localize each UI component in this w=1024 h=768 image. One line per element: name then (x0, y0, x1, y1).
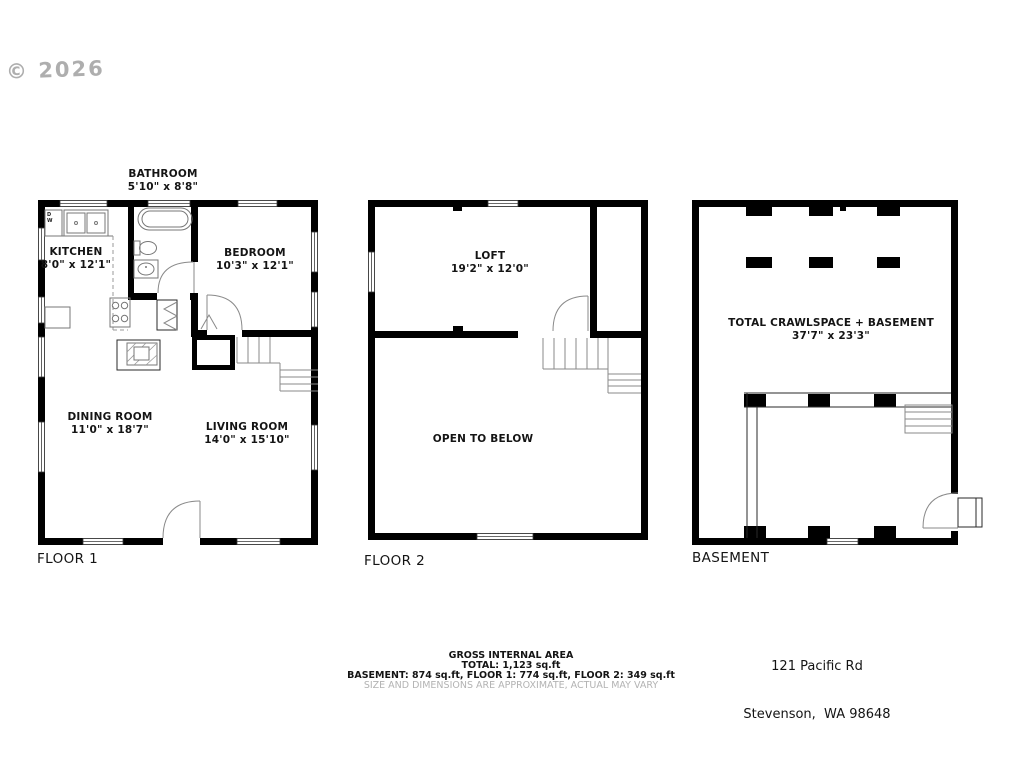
toilet (134, 241, 157, 255)
living-room-name: LIVING ROOM (204, 421, 289, 434)
bedroom-label: BEDROOM 10'3" x 12'1" (216, 247, 294, 273)
kitchen-dims: 8'0" x 12'1" (41, 259, 111, 272)
support-pillars (744, 207, 900, 538)
closet (195, 338, 233, 368)
kitchen-label: KITCHEN 8'0" x 12'1" (41, 246, 111, 272)
loft-label: LOFT 19'2" x 12'0" (451, 250, 529, 276)
basement-name: BASEMENT (692, 550, 769, 566)
dishwasher-label-w: W (47, 219, 53, 225)
copyright-watermark: © 2026 (6, 56, 106, 83)
stairs (237, 337, 318, 391)
dining-room-dims: 11'0" x 18'7" (68, 424, 153, 437)
hall-closet-bifold (157, 300, 177, 330)
fireplace (117, 340, 160, 370)
living-room-dims: 14'0" x 15'10" (204, 434, 289, 447)
address-line1: 121 Pacific Rd (743, 659, 890, 675)
bathtub (138, 208, 192, 230)
bedroom-name: BEDROOM (216, 247, 294, 260)
bathroom-door (158, 262, 194, 293)
bedroom-door (201, 295, 242, 330)
floorplan-page: © 2026 (0, 0, 1024, 768)
living-room-label: LIVING ROOM 14'0" x 15'10" (204, 421, 289, 447)
dining-room-label: DINING ROOM 11'0" x 18'7" (68, 411, 153, 437)
kitchen-name: KITCHEN (41, 246, 111, 259)
bathroom-label: BATHROOM 5'10" x 8'8" (128, 168, 198, 194)
basement-door (923, 493, 982, 531)
refrigerator (45, 307, 70, 328)
loft-name: LOFT (451, 250, 529, 263)
loft-door (553, 296, 588, 331)
crawlspace-dims: 37'7" x 23'3" (728, 330, 934, 343)
basement-outer-walls (692, 200, 958, 545)
floor2-name: FLOOR 2 (364, 553, 425, 569)
basement-window (827, 539, 858, 545)
open-to-below-text: OPEN TO BELOW (433, 433, 534, 446)
crawlspace-label: TOTAL CRAWLSPACE + BASEMENT 37'7" x 23'3… (728, 317, 934, 343)
stairs (543, 338, 641, 393)
floor1-name: FLOOR 1 (37, 551, 98, 567)
bathroom-name: BATHROOM (128, 168, 198, 181)
bedroom-dims: 10'3" x 12'1" (216, 260, 294, 273)
front-door (163, 501, 200, 545)
bathroom-dims: 5'10" x 8'8" (128, 181, 198, 194)
open-to-below-label: OPEN TO BELOW (433, 433, 534, 446)
dining-room-name: DINING ROOM (68, 411, 153, 424)
bathroom-sink (134, 260, 158, 278)
crawlspace-partition (744, 393, 951, 538)
address-line2: Stevenson, WA 98648 (743, 707, 890, 723)
kitchen-sink (64, 210, 108, 236)
dishwasher-label: D W (47, 213, 53, 224)
loft-dims: 19'2" x 12'0" (451, 263, 529, 276)
basement-drawing (688, 197, 988, 557)
stairs (905, 405, 952, 433)
area-summary: GROSS INTERNAL AREA TOTAL: 1,123 sq.ft B… (347, 651, 675, 691)
area-summary-disclaimer: SIZE AND DIMENSIONS ARE APPROXIMATE, ACT… (347, 681, 675, 691)
crawlspace-name: TOTAL CRAWLSPACE + BASEMENT (728, 317, 934, 330)
property-address: 121 Pacific Rd Stevenson, WA 98648 (743, 627, 890, 755)
